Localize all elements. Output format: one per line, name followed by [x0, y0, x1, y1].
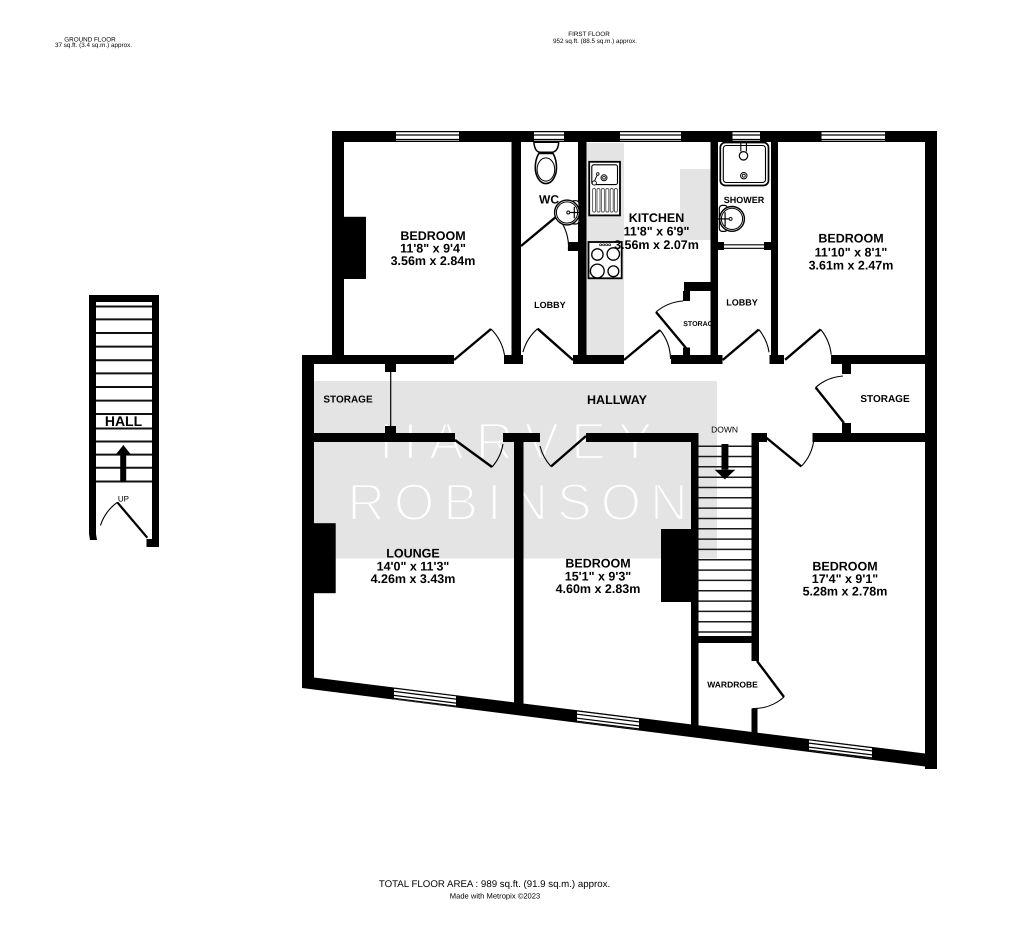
svg-text:3.56m x 2.84m: 3.56m x 2.84m [391, 254, 476, 268]
svg-text:4.26m x 3.43m: 4.26m x 3.43m [371, 572, 456, 586]
svg-text:LOBBY: LOBBY [726, 298, 758, 308]
svg-text:KITCHEN: KITCHEN [629, 211, 685, 225]
svg-text:BEDROOM: BEDROOM [818, 231, 883, 245]
svg-text:HALL: HALL [105, 413, 143, 429]
svg-text:3.61m x 2.47m: 3.61m x 2.47m [809, 258, 894, 272]
svg-text:BEDROOM: BEDROOM [565, 556, 630, 570]
svg-text:HALLWAY: HALLWAY [587, 393, 648, 407]
svg-text:STORAGE: STORAGE [323, 395, 373, 406]
svg-text:DOWN: DOWN [711, 424, 738, 434]
svg-text:STORAGE: STORAGE [860, 394, 910, 405]
svg-text:TOTAL FLOOR AREA : 989 sq.ft.: TOTAL FLOOR AREA : 989 sq.ft. (91.9 sq.m… [379, 879, 610, 890]
svg-text:11'10" x 8'1": 11'10" x 8'1" [815, 245, 888, 259]
svg-text:UP: UP [118, 494, 129, 503]
svg-text:5.28m x 2.78m: 5.28m x 2.78m [803, 584, 888, 598]
svg-text:Made with Metropix ©2023: Made with Metropix ©2023 [450, 891, 540, 900]
svg-text:LOBBY: LOBBY [534, 300, 566, 310]
svg-text:4.60m x 2.83m: 4.60m x 2.83m [556, 582, 641, 596]
svg-text:952 sq.ft. (88.5 sq.m.) approx: 952 sq.ft. (88.5 sq.m.) approx. [553, 38, 637, 45]
svg-text:LOUNGE: LOUNGE [386, 546, 439, 560]
svg-text:3.56m x 2.07m: 3.56m x 2.07m [614, 238, 699, 252]
svg-text:SHOWER: SHOWER [724, 195, 765, 205]
svg-text:WARDROBE: WARDROBE [707, 680, 758, 690]
svg-text:11'8" x 6'9": 11'8" x 6'9" [624, 224, 690, 238]
svg-text:37 sq.ft. (3.4 sq.m.) approx.: 37 sq.ft. (3.4 sq.m.) approx. [55, 42, 132, 49]
svg-text:WC: WC [539, 193, 559, 207]
